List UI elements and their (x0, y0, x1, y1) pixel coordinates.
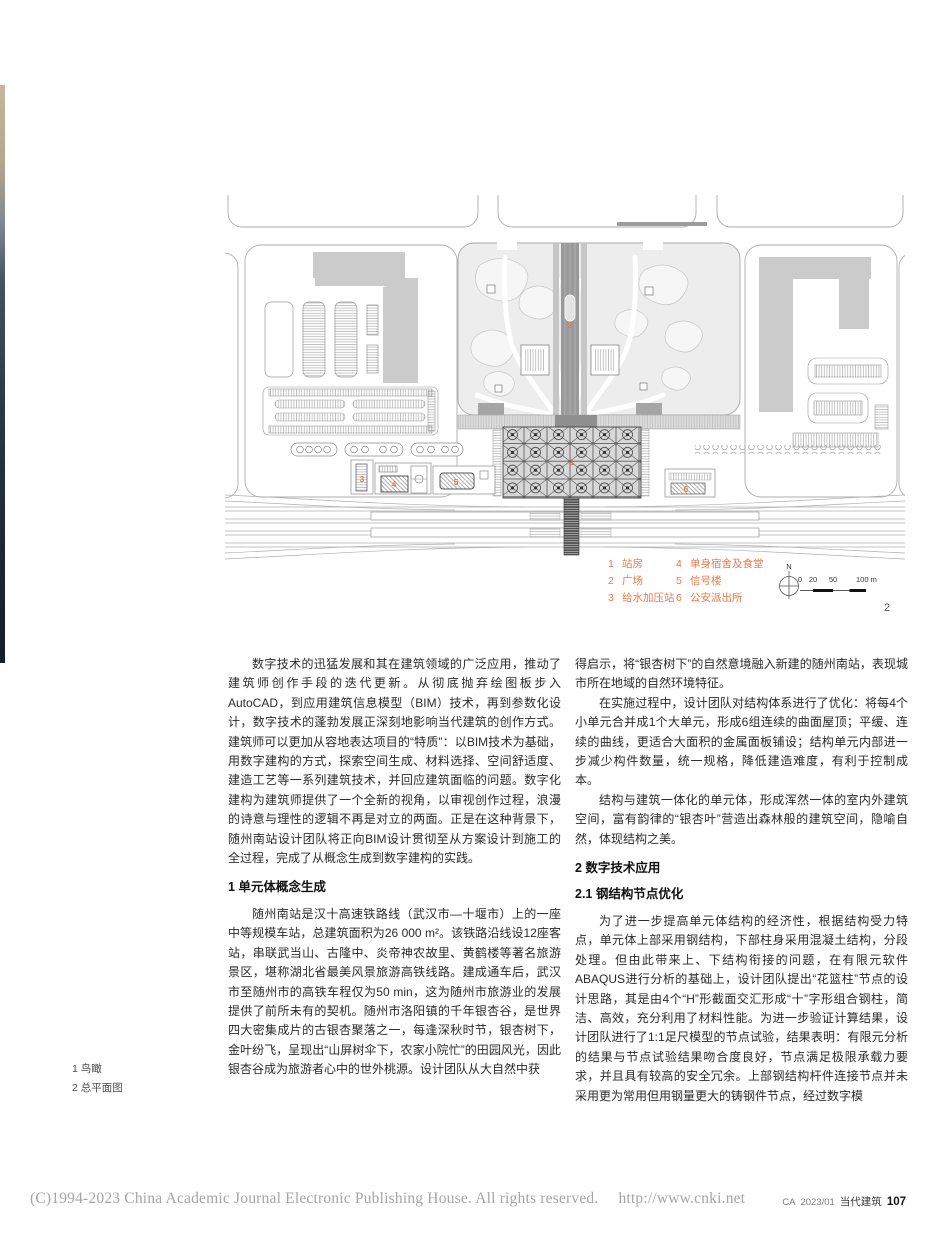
aerial-photo-edge (0, 85, 5, 663)
journal-code: CA (782, 1197, 795, 1208)
building-shape (383, 279, 418, 383)
site-plan-drawing: 2 1 (225, 195, 905, 565)
caption-aerial: 1 鸟瞰 (72, 1060, 123, 1079)
north-and-scale: N 0 20 50 100 m (776, 560, 908, 607)
figure-captions: 1 鸟瞰 2 总平面图 (72, 1060, 123, 1098)
plan-label-station: 1 (570, 457, 575, 467)
paragraph-structure-optimization: 在实施过程中，设计团队对结构体系进行了优化：将每4个小单元合并成1个大单元，形成… (575, 694, 908, 791)
paragraph-intro: 数字技术的迅猛发展和其在建筑领域的广泛应用，推动了建筑师创作手段的迭代更新。从彻… (228, 655, 561, 868)
copyright-notice: (C)1994-2023 China Academic Journal Elec… (30, 1190, 745, 1208)
journal-footer: CA 2023/01 当代建筑 107 (782, 1194, 906, 1209)
section-heading-1: 1 单元体概念生成 (228, 878, 561, 897)
figure-number: 2 (884, 602, 890, 614)
cnki-url: http://www.cnki.net (618, 1190, 745, 1207)
legend-item: 3给水加压站 (608, 590, 675, 607)
legend-column-1: 1站房 2广场 3给水加压站 (608, 556, 675, 607)
svg-text:100 m: 100 m (856, 575, 877, 584)
left-block (263, 252, 438, 435)
parking-lot (793, 358, 888, 447)
journal-issue: 2023/01 (800, 1197, 834, 1208)
section-heading-2-1: 2.1 钢结构节点优化 (575, 885, 908, 904)
copyright-text: (C)1994-2023 China Academic Journal Elec… (30, 1190, 598, 1207)
pedestrian-overpass (564, 498, 579, 555)
legend-item: 4单身宿舍及食堂 (676, 556, 764, 573)
journal-page: 2 1 (0, 0, 950, 1240)
legend-item: 2广场 (608, 573, 675, 590)
left-text-column: 数字技术的迅猛发展和其在建筑领域的广泛应用，推动了建筑师创作手段的迭代更新。从彻… (228, 655, 561, 1080)
svg-text:N: N (786, 562, 791, 571)
scale-bar: 0 20 50 100 m (798, 575, 877, 592)
plaza-landscape: 2 (458, 240, 740, 429)
north-arrow-icon: N (780, 562, 799, 599)
central-axis (553, 243, 587, 427)
plan-label-police: 6 (684, 484, 689, 494)
road-shading (617, 222, 707, 226)
svg-text:50: 50 (829, 575, 837, 584)
caption-masterplan: 2 总平面图 (72, 1079, 123, 1098)
section-heading-2: 2 数字技术应用 (575, 859, 908, 878)
paragraph-continuation: 得启示，将“银杏树下”的自然意境融入新建的随州南站，表现城市所在地域的自然环境特… (575, 655, 908, 694)
parking-lot (263, 387, 438, 435)
plan-label-pump: 3 (360, 474, 365, 484)
police-station (665, 445, 883, 497)
station-canopy: 1 (493, 427, 649, 498)
legend-item: 6公安派出所 (676, 590, 764, 607)
paragraph-unit-integration: 结构与建筑一体化的单元体，形成浑然一体的室内外建筑空间，富有韵律的“银杏叶”营造… (575, 791, 908, 849)
railway-tracks (225, 495, 905, 559)
legend-item: 1站房 (608, 556, 675, 573)
site-plan-figure: 2 1 (225, 195, 905, 565)
page-number: 107 (887, 1196, 906, 1208)
paragraph-steel-node: 为了进一步提高单元体结构的经济性，根据结构受力特点，单元体上部采用钢结构，下部柱… (575, 912, 908, 1106)
right-text-column: 得启示，将“银杏树下”的自然意境融入新建的随州南站，表现城市所在地域的自然环境特… (575, 655, 908, 1106)
svg-text:0: 0 (798, 575, 802, 584)
paragraph-station-intro: 随州南站是汉十高速铁路线（武汉市—十堰市）上的一座中等规模车站，总建筑面积为26… (228, 905, 561, 1080)
right-block (759, 257, 888, 447)
svg-text:20: 20 (809, 575, 817, 584)
plan-label-plaza: 2 (568, 320, 573, 330)
legend-column-2: 4单身宿舍及食堂 5信号楼 6公安派出所 (676, 556, 764, 607)
journal-name: 当代建筑 (840, 1194, 882, 1209)
plan-label-dorm: 4 (392, 479, 397, 489)
legend-item: 5信号楼 (676, 573, 764, 590)
plan-label-signal: 5 (454, 477, 459, 487)
